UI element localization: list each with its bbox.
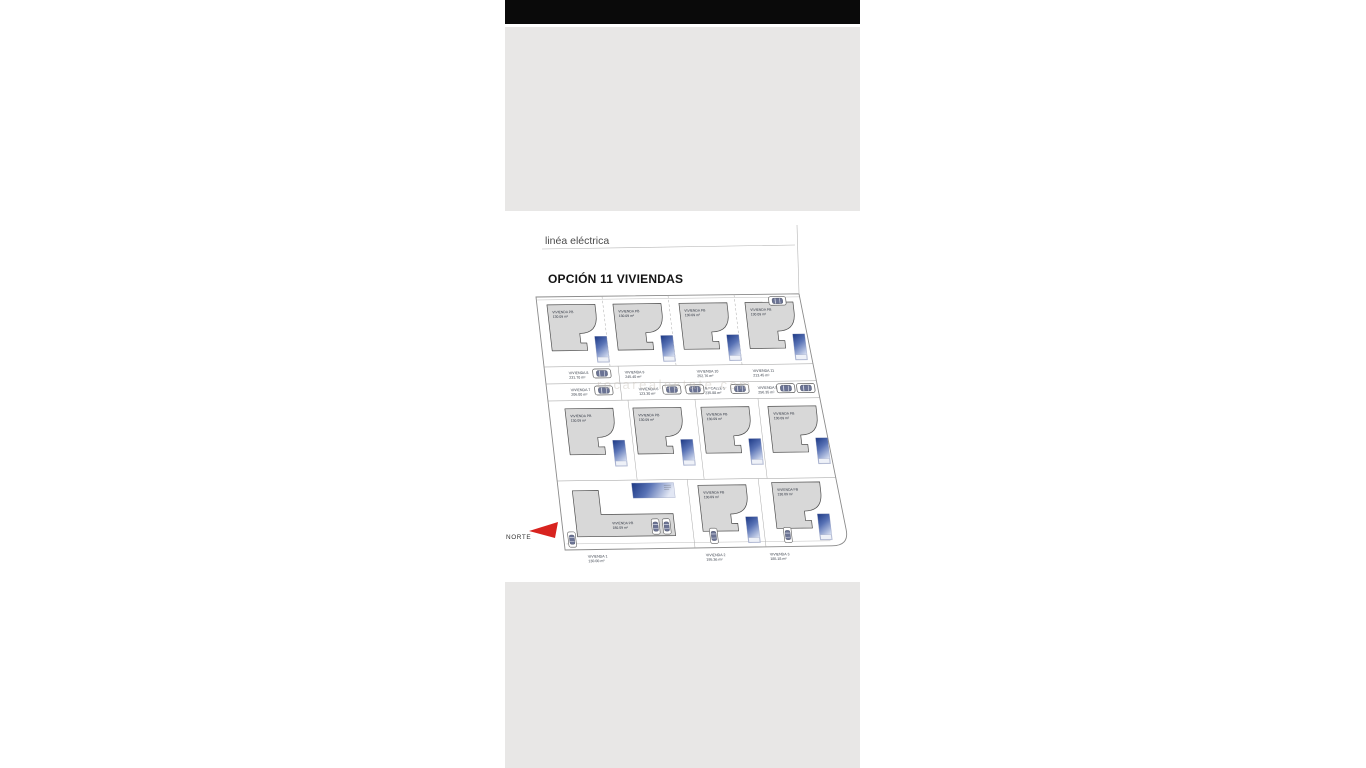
top-black-bar xyxy=(505,0,860,24)
car-icon xyxy=(651,519,660,534)
house-area: 180.09 m² xyxy=(612,526,629,530)
parking-space-label: VIVIENDA 5 xyxy=(758,386,778,390)
site-plan-svg: linéa eléctrica OPCIÓN 11 VIVIENDAS NORT… xyxy=(505,211,860,582)
house-label: VIVIENDA PB xyxy=(638,413,660,417)
parking-space-area: 213.45 m² xyxy=(753,373,770,377)
power-line-right xyxy=(797,225,799,293)
house-area: 130.09 m² xyxy=(639,418,656,422)
car-icon xyxy=(783,527,792,542)
house-area: 130.09 m² xyxy=(553,315,570,319)
house-label: VIVIENDA PB xyxy=(684,308,706,312)
parking-space-area: 231.70 m² xyxy=(569,376,586,380)
parking-space-area: 256.35 m² xyxy=(758,390,775,394)
house-area: 130.09 m² xyxy=(777,492,794,496)
bottom-gray-panel xyxy=(505,582,860,768)
house-label: VIVIENDA PB xyxy=(773,412,795,416)
screenshot-page: linéa eléctrica OPCIÓN 11 VIVIENDAS NORT… xyxy=(0,0,1366,768)
car-icon xyxy=(709,528,718,543)
top-gray-panel xyxy=(505,27,860,211)
parking-space-label: VIVIENDA 7 xyxy=(571,388,591,392)
house-area: 130.09 m² xyxy=(685,313,702,317)
car-icon xyxy=(796,383,815,392)
plot-area: 185.18 m² xyxy=(770,557,787,561)
house-area: 130.09 m² xyxy=(619,314,636,318)
house-label: VIVIENDA PB xyxy=(750,308,772,312)
house-area: 130.09 m² xyxy=(571,419,588,423)
car-icon xyxy=(776,384,795,393)
house-area: 130.09 m² xyxy=(704,495,721,499)
parking-space-area: 206.80 m² xyxy=(571,393,588,397)
plot-area: 130.00 m² xyxy=(588,559,605,563)
plan-title: OPCIÓN 11 VIVIENDAS xyxy=(548,271,683,286)
north-label: NORTE xyxy=(506,534,531,541)
house-label: VIVIENDA PB xyxy=(552,310,574,314)
watermark: rocarealestate com xyxy=(597,377,753,392)
bottom-plot-labels: VIVIENDA 1 130.00 m² VIVIENDA 2 195.36 m… xyxy=(588,552,791,563)
car-icon xyxy=(768,297,786,306)
north-arrow-icon xyxy=(529,522,558,538)
car-icon xyxy=(662,519,671,534)
plot-label: VIVIENDA 2 xyxy=(706,553,726,557)
house-area: 130.09 m² xyxy=(707,417,724,421)
plot-label: VIVIENDA 1 xyxy=(588,555,608,559)
house-label: VIVIENDA PB xyxy=(612,521,634,525)
house-label: VIVIENDA PB xyxy=(706,412,728,416)
house-area: 130.09 m² xyxy=(774,416,791,420)
parking-space-label: VIVIENDA 8 xyxy=(569,371,589,375)
car-icon xyxy=(567,532,576,547)
parking-space-label: VIVIENDA 11 xyxy=(753,369,775,373)
plot-label: VIVIENDA 3 xyxy=(770,552,790,556)
content-column: linéa eléctrica OPCIÓN 11 VIVIENDAS NORT… xyxy=(505,0,860,768)
house-label: VIVIENDA PB xyxy=(777,488,799,492)
parking-space-area: 123.30 m² xyxy=(639,392,656,396)
parking-space-label: VIVIENDA 10 xyxy=(697,369,719,373)
plot-area: 195.36 m² xyxy=(706,558,723,562)
site-area: VIVIENDA PB 130.09 m² VIVIENDA PB 130.09… xyxy=(536,294,850,564)
house-label: VIVIENDA PB xyxy=(618,309,640,313)
house-label: VIVIENDA PB xyxy=(703,491,725,495)
north-indicator: NORTE xyxy=(506,522,558,541)
site-plan: linéa eléctrica OPCIÓN 11 VIVIENDAS NORT… xyxy=(505,211,860,582)
power-line-label: linéa eléctrica xyxy=(545,235,609,247)
house-label: VIVIENDA PB xyxy=(570,414,592,418)
parking-space-label: VIVIENDA 9 xyxy=(625,370,645,374)
house-area: 130.09 m² xyxy=(751,312,768,316)
